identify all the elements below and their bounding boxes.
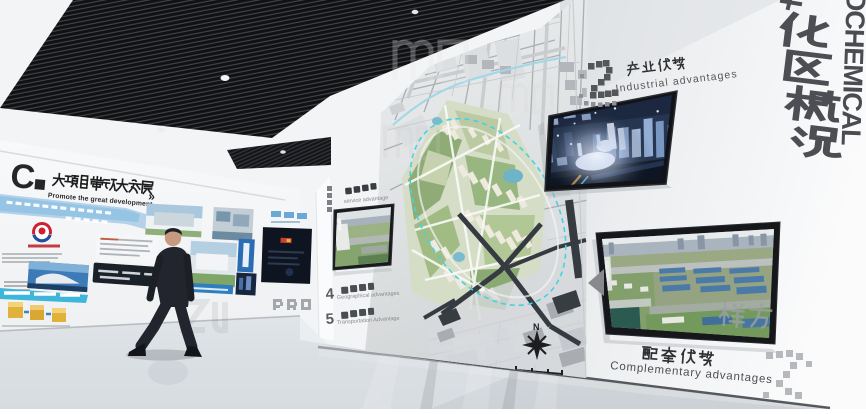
svg-text:OCHEMICAL: OCHEMICAL: [836, 0, 866, 146]
svg-text:C: C: [9, 157, 37, 197]
svg-text:N: N: [533, 322, 540, 332]
svg-text:5: 5: [325, 310, 335, 328]
